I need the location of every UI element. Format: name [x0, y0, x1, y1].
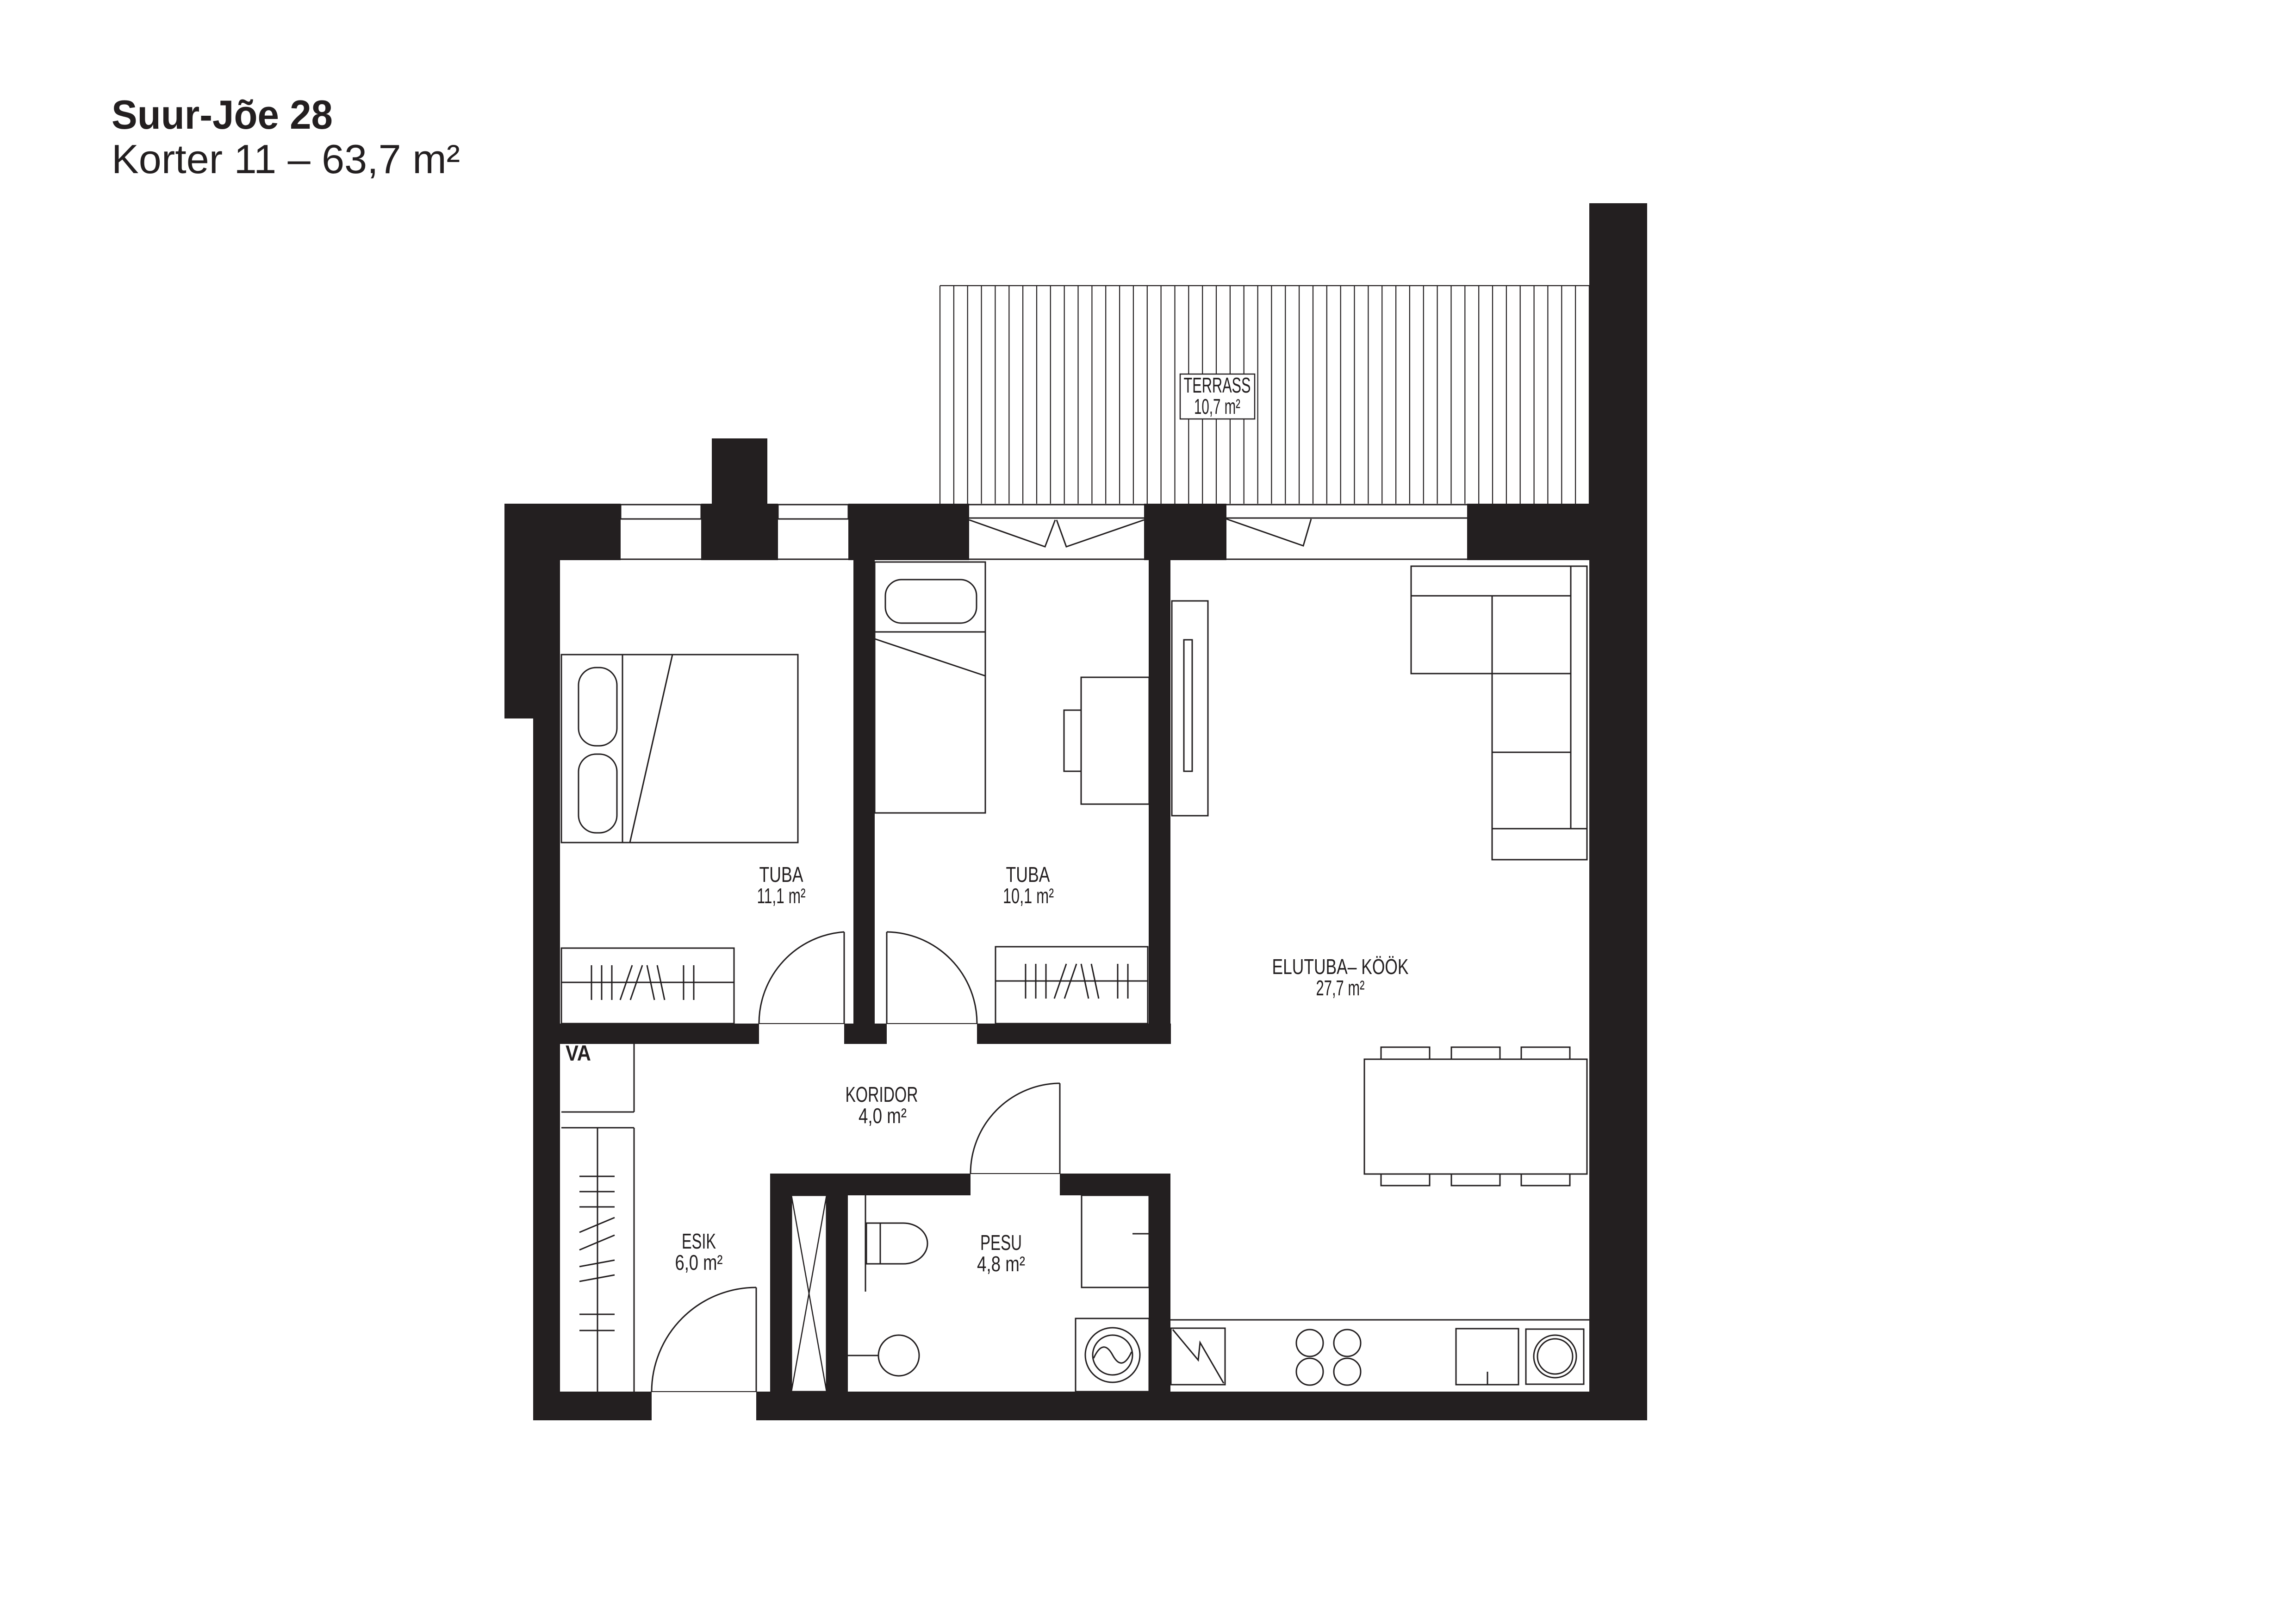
- svg-text:4,8 m²: 4,8 m²: [977, 1252, 1025, 1276]
- svg-text:Korter 11 – 63,7 m²: Korter 11 – 63,7 m²: [112, 136, 460, 182]
- svg-text:TUBA: TUBA: [759, 862, 803, 887]
- svg-text:6,0 m²: 6,0 m²: [675, 1250, 723, 1274]
- svg-text:TUBA: TUBA: [1006, 862, 1050, 887]
- svg-text:ESIK: ESIK: [682, 1229, 716, 1253]
- svg-text:VA: VA: [566, 1041, 591, 1065]
- svg-text:PESU: PESU: [980, 1230, 1022, 1255]
- svg-text:TERRASS: TERRASS: [1184, 373, 1251, 397]
- svg-text:27,7 m²: 27,7 m²: [1316, 976, 1365, 1000]
- svg-text:KORIDOR: KORIDOR: [846, 1082, 918, 1106]
- svg-text:11,1 m²: 11,1 m²: [757, 884, 806, 908]
- svg-text:ELUTUBA– KÖÖK: ELUTUBA– KÖÖK: [1272, 955, 1409, 979]
- svg-text:4,0 m²: 4,0 m²: [859, 1104, 907, 1128]
- svg-text:10,1 m²: 10,1 m²: [1003, 884, 1054, 908]
- svg-text:Suur-Jõe 28: Suur-Jõe 28: [112, 92, 333, 137]
- svg-text:10,7 m²: 10,7 m²: [1194, 394, 1240, 418]
